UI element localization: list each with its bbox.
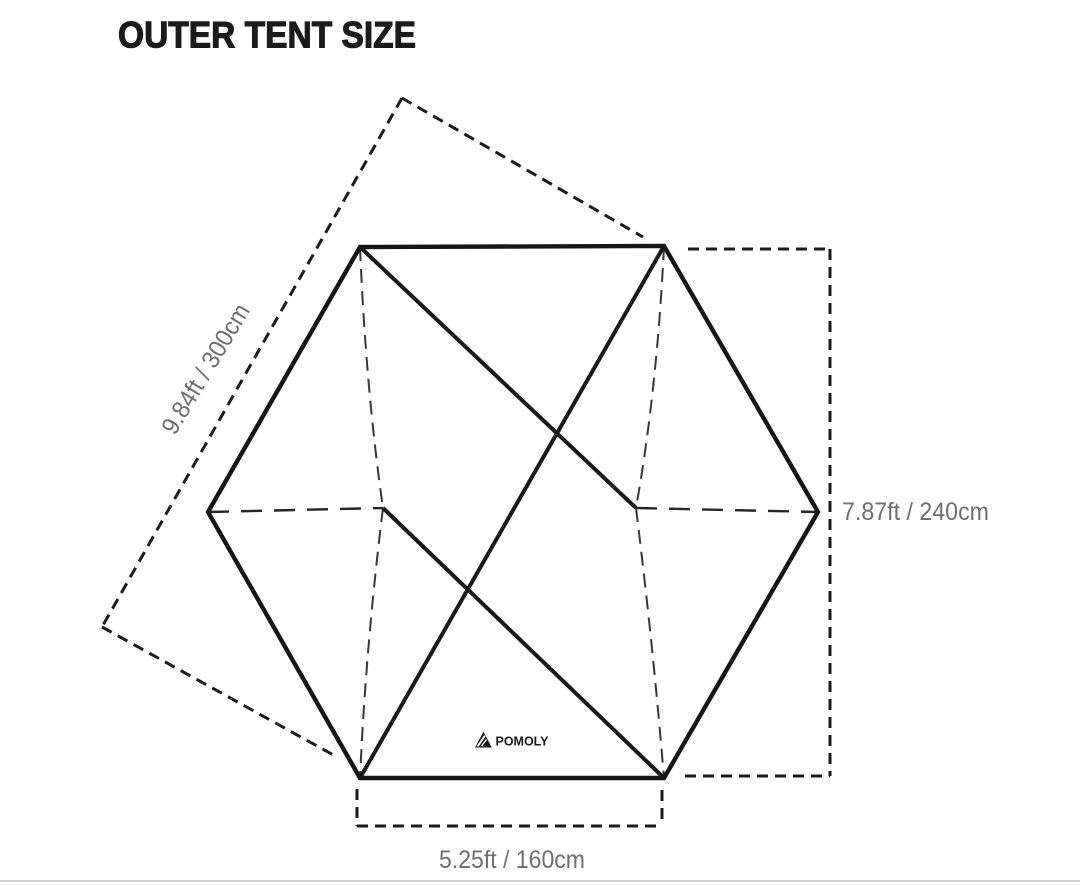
svg-text:7.87ft / 240cm: 7.87ft / 240cm bbox=[842, 498, 989, 526]
svg-text:5.25ft / 160cm: 5.25ft / 160cm bbox=[439, 846, 585, 874]
svg-text:OUTER TENT SIZE: OUTER TENT SIZE bbox=[118, 15, 416, 56]
svg-text:POMOLY: POMOLY bbox=[496, 735, 550, 749]
